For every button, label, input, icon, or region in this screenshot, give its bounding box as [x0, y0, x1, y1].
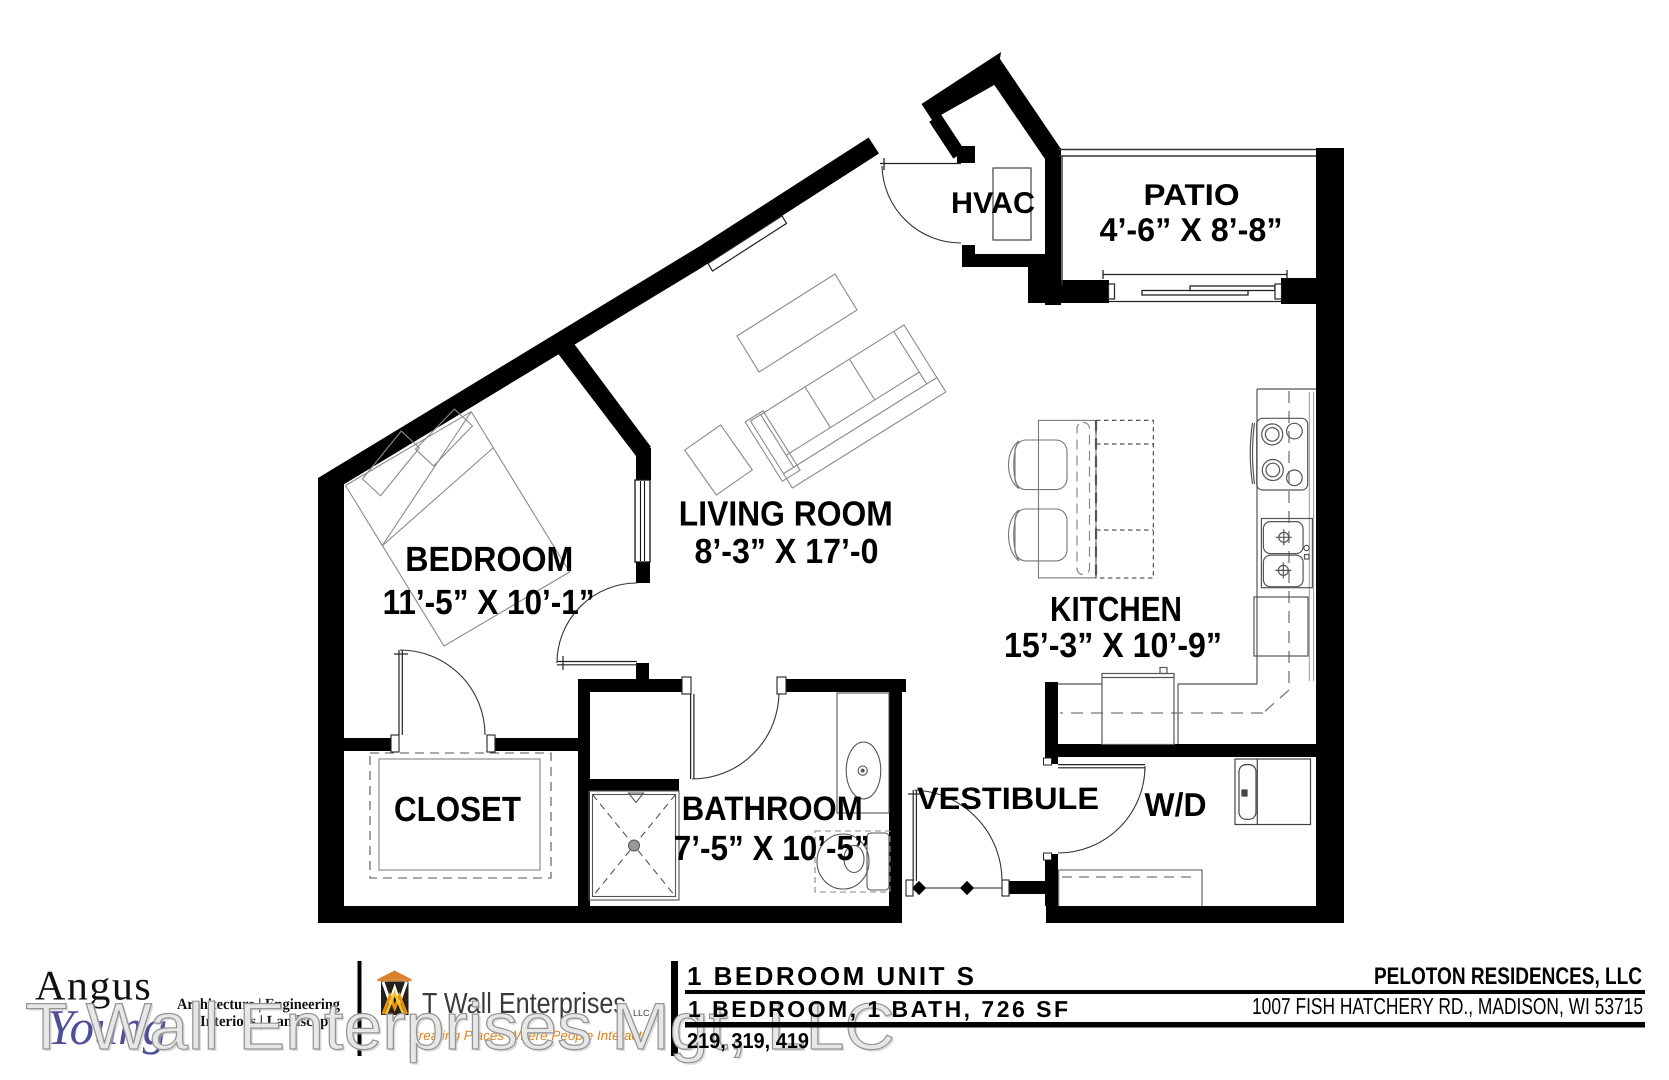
svg-text:PATIO: PATIO	[1144, 179, 1240, 212]
svg-text:BEDROOM: BEDROOM	[405, 540, 573, 579]
svg-text:CLOSET: CLOSET	[394, 790, 521, 829]
svg-text:BATHROOM: BATHROOM	[682, 790, 863, 828]
svg-text:1007 FISH HATCHERY RD., MADISO: 1007 FISH HATCHERY RD., MADISON, WI 5371…	[1252, 993, 1643, 1019]
svg-text:KITCHEN: KITCHEN	[1050, 590, 1182, 629]
svg-text:PELOTON RESIDENCES, LLC: PELOTON RESIDENCES, LLC	[1374, 963, 1642, 990]
svg-text:1 BEDROOM, 1 BATH, 726 SF: 1 BEDROOM, 1 BATH, 726 SF	[688, 996, 1068, 1022]
svg-text:HVAC: HVAC	[951, 187, 1035, 220]
svg-text:VESTIBULE: VESTIBULE	[917, 781, 1099, 816]
svg-text:W/D: W/D	[1145, 786, 1207, 823]
svg-text:1 BEDROOM UNIT S: 1 BEDROOM UNIT S	[687, 961, 974, 991]
svg-text:4’-6” X 8’-8”: 4’-6” X 8’-8”	[1100, 211, 1283, 248]
svg-text:7’-5” X 10’-5”: 7’-5” X 10’-5”	[674, 829, 870, 868]
svg-text:LIVING ROOM: LIVING ROOM	[679, 495, 893, 534]
svg-text:15’-3” X 10’-9”: 15’-3” X 10’-9”	[1004, 626, 1222, 665]
svg-text:8’-3” X 17’-0: 8’-3” X 17’-0	[695, 532, 879, 571]
svg-text:11’-5” X 10’-1”: 11’-5” X 10’-1”	[383, 583, 595, 622]
svg-text:219, 319, 419: 219, 319, 419	[687, 1029, 809, 1053]
